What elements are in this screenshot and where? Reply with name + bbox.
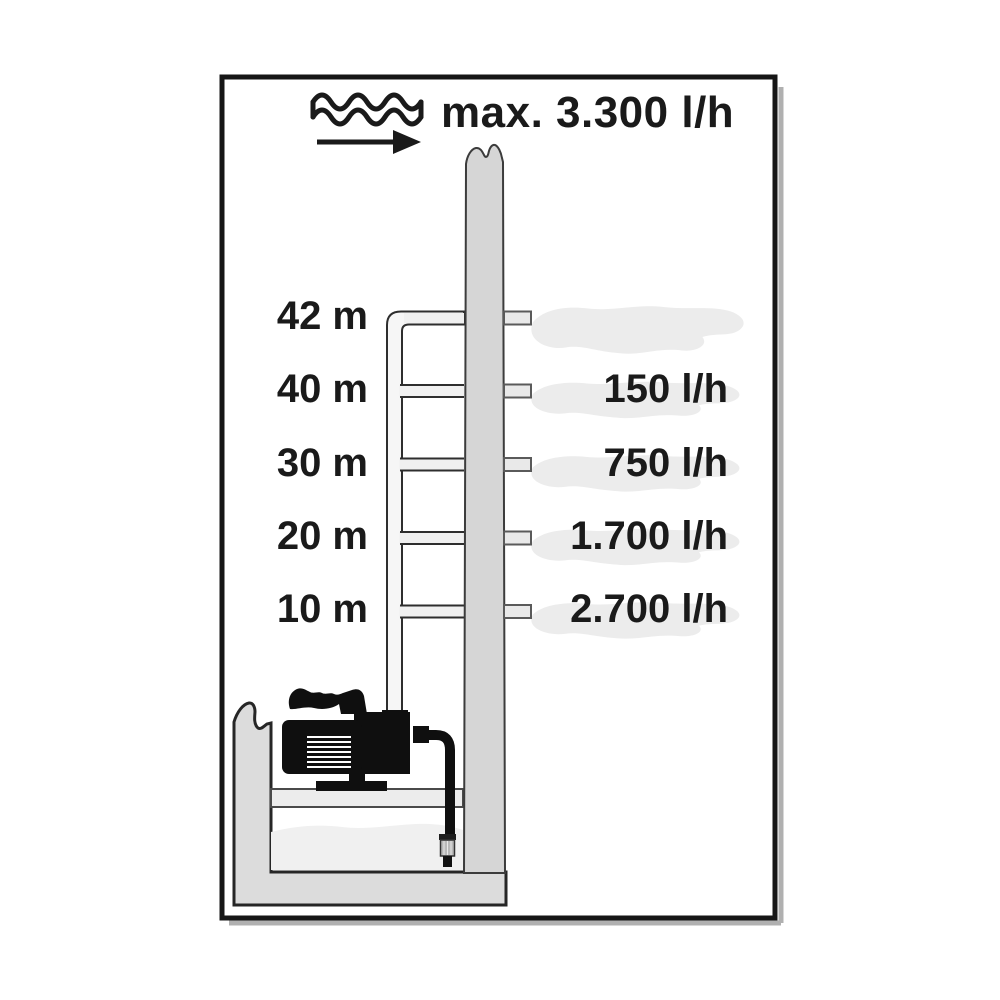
water-splash-42m — [531, 306, 743, 353]
diagram-canvas — [0, 0, 1000, 1000]
water-flow-icon — [313, 95, 421, 124]
outlet-spout-10m — [504, 605, 531, 618]
pump-handle — [289, 688, 367, 714]
delivery-tower — [464, 145, 505, 873]
flow-label-30m: 750 l/h — [538, 443, 728, 483]
riser-pipe — [387, 312, 464, 722]
pump-cooling-fins — [307, 737, 351, 767]
branch-pipe-10m — [400, 606, 465, 618]
flow-label-40m: 150 l/h — [538, 369, 728, 409]
outlet-spout-20m — [504, 532, 531, 545]
outlet-spout-42m — [504, 312, 531, 325]
outlet-spouts — [504, 312, 531, 619]
height-label-20m: 20 m — [238, 516, 368, 556]
pump-platform — [271, 789, 463, 807]
height-label-40m: 40 m — [238, 369, 368, 409]
branch-pipes — [400, 385, 465, 618]
flow-label-10m: 2.700 l/h — [538, 589, 728, 629]
branch-pipe-20m — [400, 532, 465, 544]
flow-label-20m: 1.700 l/h — [538, 516, 728, 556]
outlet-spout-40m — [504, 385, 531, 398]
flow-arrow-icon — [317, 130, 421, 154]
branch-pipe-40m — [400, 385, 465, 397]
height-label-30m: 30 m — [238, 443, 368, 483]
height-label-42m: 42 m — [238, 296, 368, 336]
suction-hose — [427, 735, 450, 835]
branch-pipe-30m — [400, 459, 465, 471]
max-flow-label: max. 3.300 l/h — [441, 91, 734, 135]
outlet-spout-30m — [504, 458, 531, 471]
height-label-10m: 10 m — [238, 589, 368, 629]
pump-performance-diagram: max. 3.300 l/h 42 m 40 m 30 m 20 m 10 m … — [0, 0, 1000, 1000]
basin-water — [271, 824, 463, 870]
